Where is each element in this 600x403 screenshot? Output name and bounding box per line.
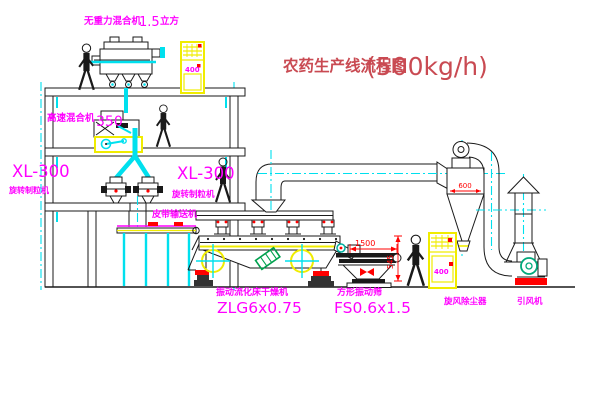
wall-lower-room xyxy=(88,211,96,287)
belt-conveyor-label: 皮带输送机 xyxy=(151,208,197,220)
diagram-capacity: (500kg/h) xyxy=(366,52,488,81)
cyclone-label: 旋风除尘器 xyxy=(443,296,487,307)
dryer-label: 振动流化床干燥机 xyxy=(216,286,288,298)
floor2-slab xyxy=(45,148,245,156)
vibrating-screen-machine: 1500 545 xyxy=(336,236,402,288)
fan-base xyxy=(515,278,547,285)
hs-mixer-size: 350 xyxy=(96,114,123,130)
granulator-left-machine xyxy=(101,177,131,203)
screen-length-dim-text: 1500 xyxy=(355,239,375,248)
fan-label: 引风机 xyxy=(517,296,543,307)
person-figure xyxy=(79,44,94,90)
person-figure xyxy=(408,235,424,286)
belt-conveyor-machine xyxy=(117,222,199,286)
fluid-bed-dryer-machine xyxy=(188,211,356,287)
screen-height-dim-text: 545 xyxy=(386,255,395,270)
exhaust-stack xyxy=(504,174,543,264)
gravity-free-mixer xyxy=(88,37,165,113)
y-distribution-pipe xyxy=(116,156,149,178)
mixer-discharge-valves xyxy=(106,74,151,88)
cabinet-indicator-dot xyxy=(198,44,202,48)
granulator-left-model: XL-300 xyxy=(12,162,70,181)
gravity-mixer-unit: 立方 xyxy=(160,15,180,27)
screen-model: FS0.6x1.5 xyxy=(334,299,411,317)
control-cabinet-right: 400 xyxy=(429,233,456,288)
cabinet-top-text: 400 xyxy=(185,66,200,74)
granulator-left-type: 旋转制粒机 xyxy=(8,185,49,195)
granulator-right-type: 旋转制粒机 xyxy=(171,189,215,200)
cyclone-diameter-dim: 600 xyxy=(458,182,471,190)
person-figure xyxy=(157,105,170,147)
stack-arrow-top xyxy=(508,177,539,193)
gravity-mixer-label: 无重力混合机 xyxy=(83,15,142,27)
control-cabinet-top: 400 xyxy=(181,42,204,93)
flow-diagram-canvas: 400 xyxy=(0,0,600,403)
granulator-right-model: XL-300 xyxy=(177,164,235,183)
duct-funnel xyxy=(252,200,285,212)
cabinet-right-text: 400 xyxy=(434,268,449,276)
induced-draft-fan-machine xyxy=(515,252,547,285)
mixer-outlet-cap xyxy=(160,47,165,58)
dryer-model: ZLG6x0.75 xyxy=(217,299,302,317)
hs-mixer-label: 高速混合机 xyxy=(47,112,95,124)
dryer-support-right xyxy=(308,268,334,287)
gravity-mixer-size: 1.5 xyxy=(139,15,160,30)
roof-slab xyxy=(45,88,245,96)
conveyor-legs xyxy=(124,233,189,286)
production-line-drawing: 400 xyxy=(0,0,600,403)
screen-label: 方形振动筛 xyxy=(337,286,382,298)
